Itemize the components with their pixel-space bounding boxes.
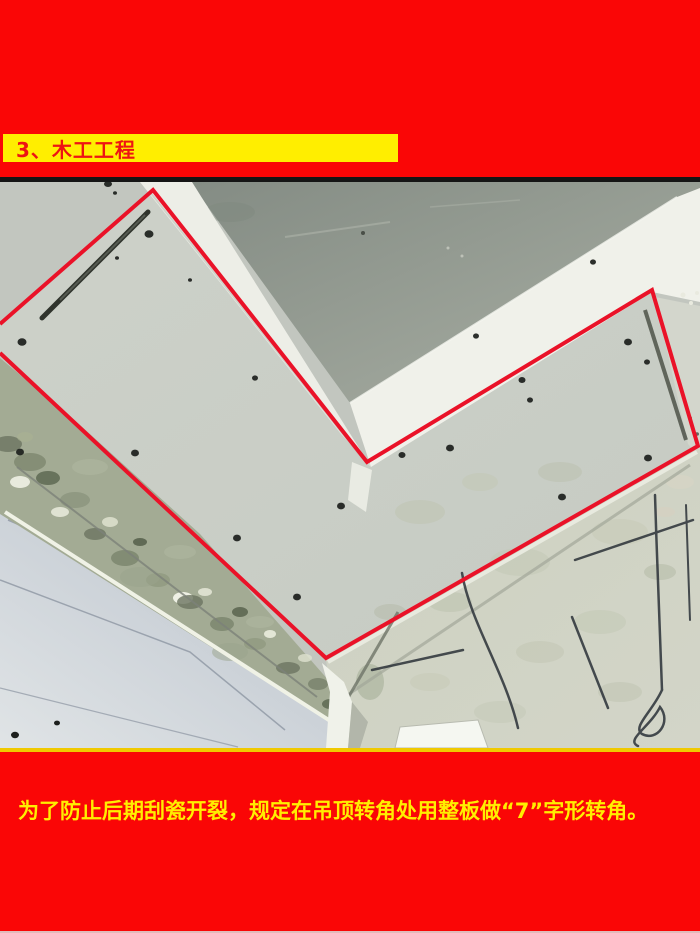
caption-text: 为了防止后期刮瓷开裂，规定在吊顶转角处用整板做“7”字形转角。	[0, 796, 700, 826]
ceiling-photo	[0, 177, 700, 752]
ceiling-photo-art	[0, 182, 700, 748]
slide-page: { "page": { "background_color": "#fa0606…	[0, 0, 700, 933]
section-title: 3、木工工程	[3, 134, 136, 163]
section-header-band: 3、木工工程	[3, 134, 398, 162]
